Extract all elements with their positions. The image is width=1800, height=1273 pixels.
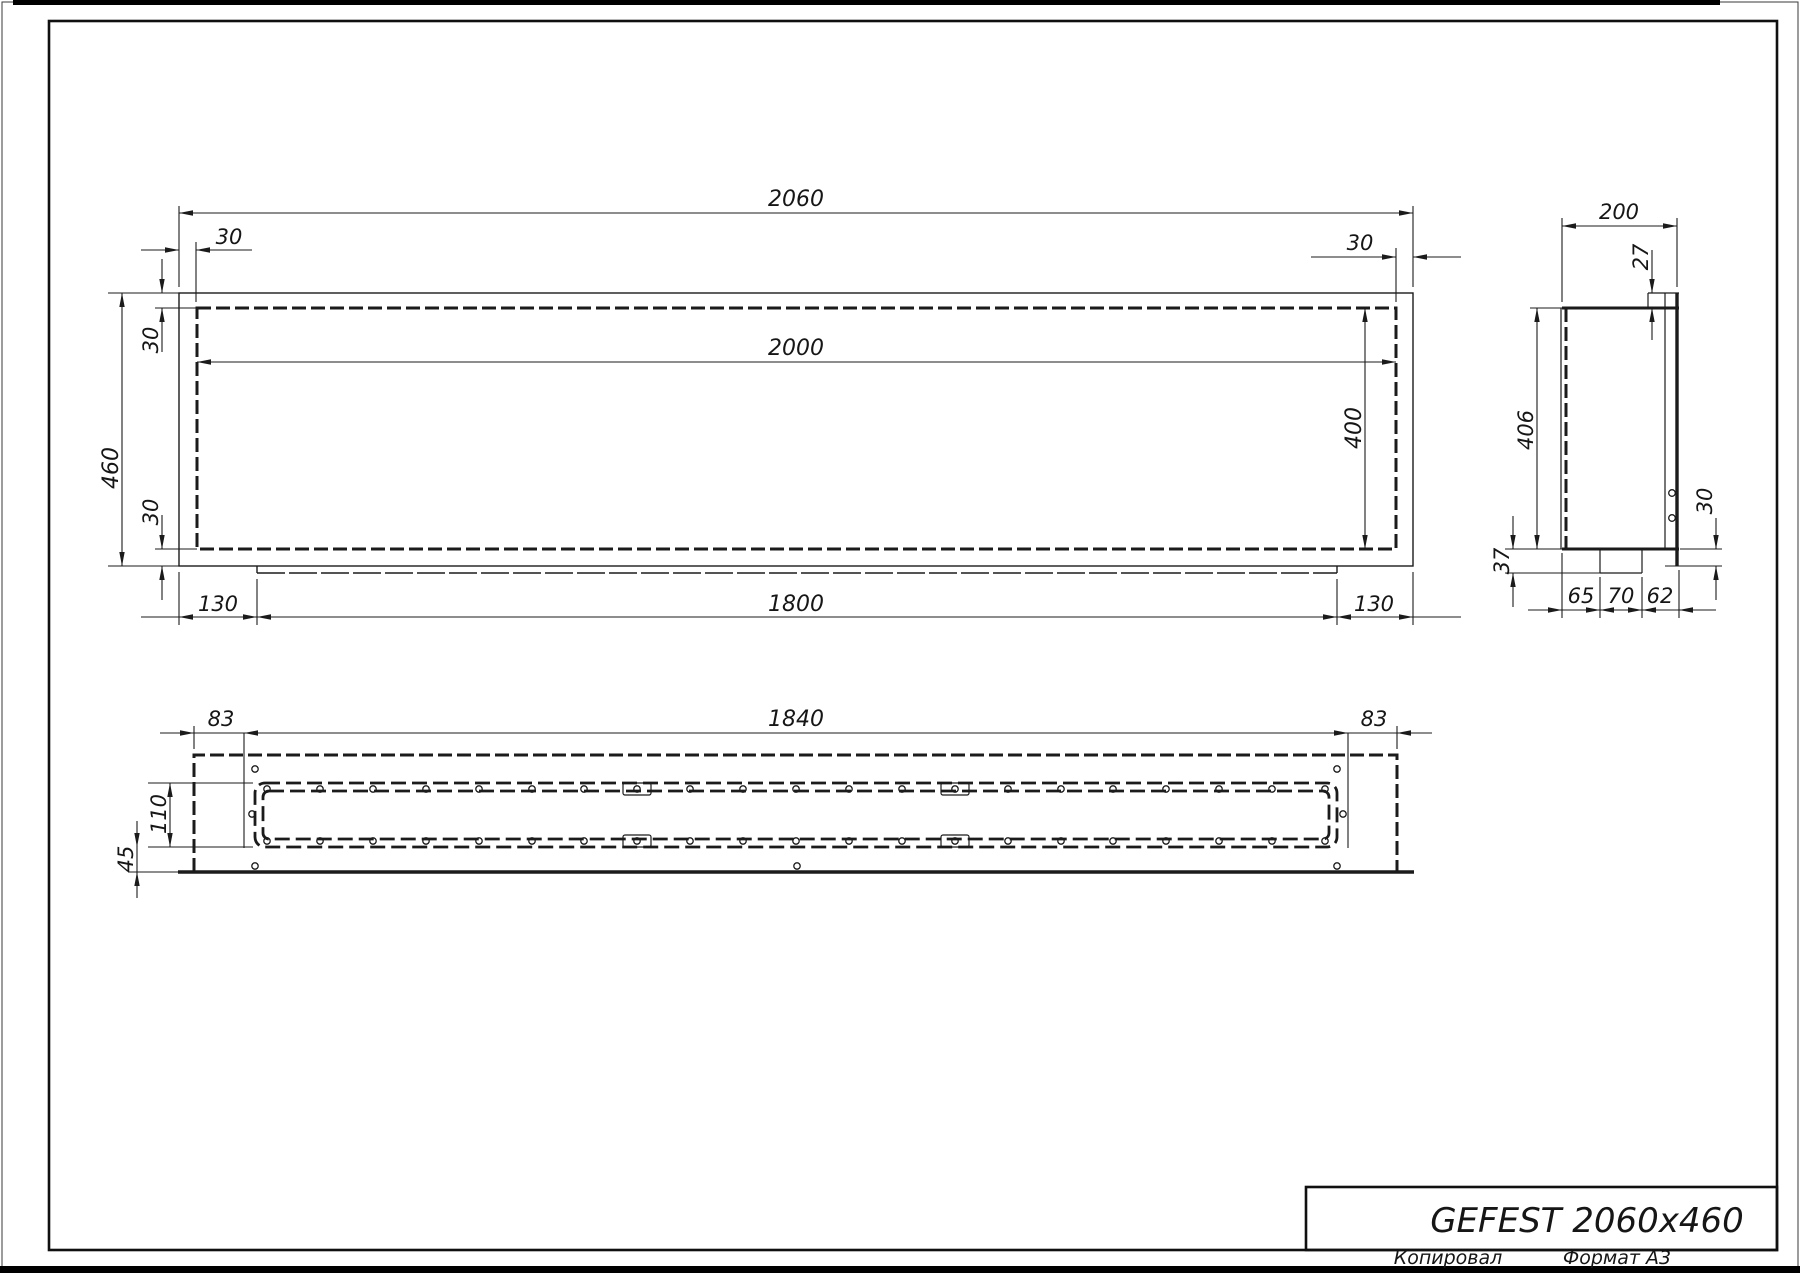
format-label: Формат A3 [1563, 1247, 1671, 1269]
dim-seg-mid: 70 [1608, 584, 1635, 608]
dim-inner-width: 2000 [768, 336, 824, 361]
dim-top-lip: 27 [1629, 243, 1653, 270]
dim-wall-side-top: 30 [139, 327, 163, 354]
front-view [179, 293, 1413, 573]
scan-bar-bottom [0, 1266, 1800, 1273]
dim-front-edge-drop: 30 [1693, 488, 1717, 515]
drawing-sheet: 2060 30 30 2000 400 460 30 30 130 1800 1… [0, 0, 1800, 1273]
dim-seg-right: 62 [1647, 584, 1674, 608]
bottom-view [178, 733, 1414, 872]
dim-total-width: 2060 [768, 187, 824, 212]
scan-bar-top [13, 0, 1720, 5]
dim-bottom-length: 1800 [768, 592, 824, 617]
dim-wall-side-bottom: 30 [139, 499, 163, 526]
dim-bottom-left-offset: 130 [198, 592, 238, 616]
front-view-dimensions [108, 206, 1461, 625]
dim-mount-length: 1840 [768, 707, 824, 732]
dim-tab-drop: 37 [1490, 547, 1514, 574]
page-border [2, 2, 1798, 1268]
side-view-dimension-labels: 200 27 406 37 30 65 70 62 [1490, 200, 1717, 608]
dim-slot-width: 110 [147, 794, 171, 834]
burner-holes [249, 766, 1346, 869]
page-frame [0, 0, 1800, 1273]
dim-wall-top-left: 30 [216, 225, 243, 249]
front-view-dimension-labels: 2060 30 30 2000 400 460 30 30 130 1800 1… [99, 187, 1394, 617]
dim-inner-height: 400 [1342, 407, 1367, 449]
model-title: GEFEST 2060x460 [1430, 1201, 1744, 1241]
side-view [1561, 293, 1722, 573]
copied-by-label: Копировал [1394, 1247, 1503, 1269]
title-block: GEFEST 2060x460 Копировал Формат A3 [1306, 1187, 1777, 1269]
dim-right-margin: 83 [1361, 707, 1388, 731]
dim-left-margin: 83 [208, 707, 235, 731]
dim-edge-offset: 45 [114, 846, 138, 873]
dim-seg-left: 65 [1568, 584, 1595, 608]
dim-depth: 200 [1599, 200, 1639, 224]
dim-wall-top-right: 30 [1347, 231, 1374, 255]
dim-side-height: 406 [1514, 410, 1538, 450]
dim-bottom-right-offset: 130 [1354, 592, 1394, 616]
dim-total-height: 460 [99, 447, 124, 489]
drawing-frame [49, 21, 1777, 1250]
